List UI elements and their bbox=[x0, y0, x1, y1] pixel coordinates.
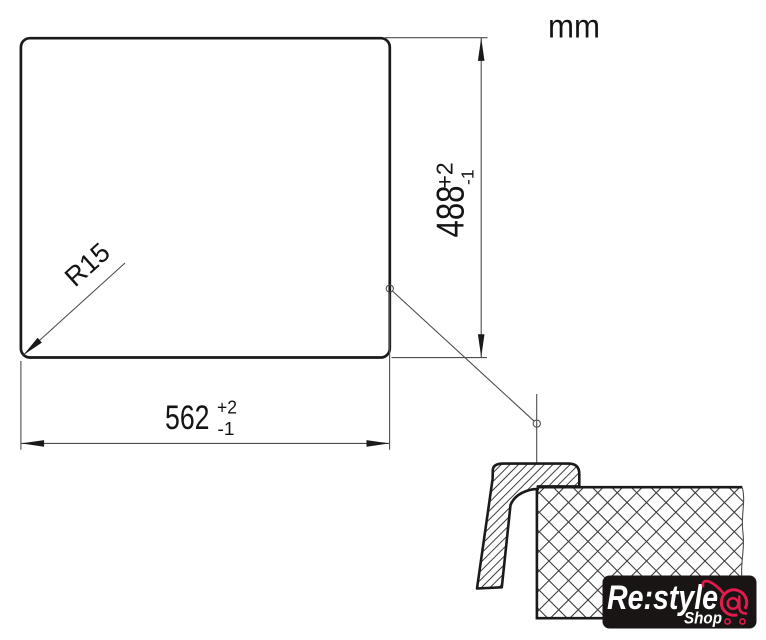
svg-text:mm: mm bbox=[548, 7, 600, 44]
svg-text:Shop: Shop bbox=[684, 609, 722, 628]
svg-text:562+2-1: 562+2-1 bbox=[165, 398, 237, 439]
svg-text:488: 488 bbox=[430, 186, 473, 238]
svg-text:+2: +2 bbox=[432, 162, 458, 188]
svg-text:-1: -1 bbox=[458, 169, 478, 185]
